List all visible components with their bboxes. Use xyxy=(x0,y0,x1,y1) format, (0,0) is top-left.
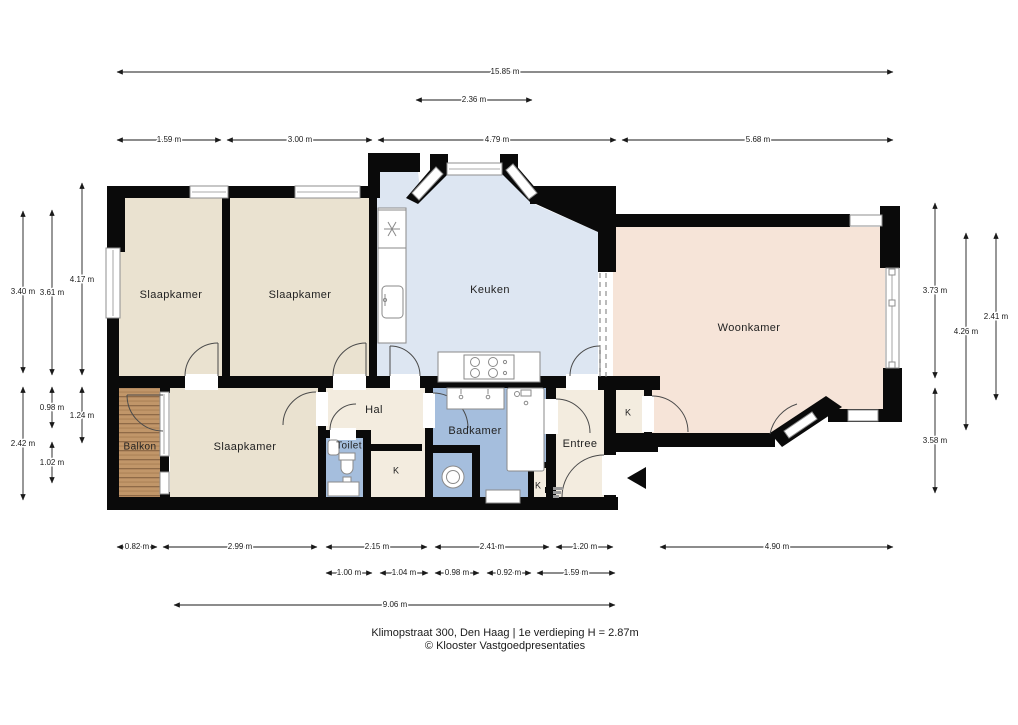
dim-bay-width: 2.36 m xyxy=(462,95,487,104)
dim-left-2: 2.42 m xyxy=(11,439,36,448)
caption-address: Klimopstraat 300, Den Haag | 1e verdiepi… xyxy=(371,627,638,639)
dim-top-4: 5.68 m xyxy=(746,135,771,144)
dim-top-2: 3.00 m xyxy=(288,135,313,144)
dim-bottom-4: 2.41 m xyxy=(480,542,505,551)
dim-bottom-8: 1.04 m xyxy=(392,568,417,577)
dimensions-bottom: 0.82 m 2.99 m 2.15 m 2.41 m 1.20 m 4.90 … xyxy=(117,542,893,609)
caption: Klimopstraat 300, Den Haag | 1e verdiepi… xyxy=(371,627,638,652)
dim-left-7: 1.24 m xyxy=(70,411,95,420)
dim-bottom-6: 4.90 m xyxy=(765,542,790,551)
dim-right-1: 3.73 m xyxy=(923,286,948,295)
label-woonkamer: Woonkamer xyxy=(718,322,781,334)
kitchen-counter xyxy=(378,208,406,343)
window-woonkamer-top xyxy=(850,215,882,226)
dim-bottom-1: 0.82 m xyxy=(125,542,150,551)
bath-step-icon xyxy=(486,490,520,503)
floorplan-canvas: Slaapkamer Slaapkamer Keuken Woonkamer S… xyxy=(0,0,1018,720)
dim-top-1: 1.59 m xyxy=(157,135,182,144)
dim-right-2: 3.58 m xyxy=(923,436,948,445)
dim-left-6: 4.17 m xyxy=(70,275,95,284)
dim-top-3: 4.79 m xyxy=(485,135,510,144)
dimensions-top: 15.85 m 2.36 m 1.59 m 3.00 m 4.79 m 5.68… xyxy=(117,67,893,144)
window-woonkamer-bottom xyxy=(848,410,878,421)
dim-left-4: 0.98 m xyxy=(40,403,65,412)
label-kast-woonkamer: K xyxy=(625,407,631,417)
dim-bottom-9: 0.98 m xyxy=(445,568,470,577)
label-keuken: Keuken xyxy=(470,284,510,296)
dim-bottom-10: 0.92 m xyxy=(497,568,522,577)
washbasin-counter-icon xyxy=(447,388,504,409)
dim-left-3: 3.61 m xyxy=(40,288,65,297)
washing-machine-icon xyxy=(442,466,464,488)
label-kast-hal: K xyxy=(393,465,399,475)
dim-bottom-3: 2.15 m xyxy=(365,542,390,551)
dim-bottom-7: 1.00 m xyxy=(337,568,362,577)
window-balkon-divider-lower xyxy=(160,472,169,494)
dim-bottom-11: 1.59 m xyxy=(564,568,589,577)
dim-right-3: 4.26 m xyxy=(954,327,979,336)
dimensions-right: 3.73 m 3.58 m 4.26 m 2.41 m xyxy=(923,203,1009,493)
label-entree: Entree xyxy=(563,438,598,450)
window-balkon-divider-upper xyxy=(160,392,169,456)
dim-total-width: 15.85 m xyxy=(491,67,520,76)
dim-left-1: 3.40 m xyxy=(11,287,36,296)
meter-box-icon xyxy=(545,487,551,493)
bathtub-icon xyxy=(507,388,544,471)
caption-credit: © Klooster Vastgoedpresentaties xyxy=(425,640,586,652)
floorplan-page: Slaapkamer Slaapkamer Keuken Woonkamer S… xyxy=(0,0,1018,720)
dim-bottom-2: 2.99 m xyxy=(228,542,253,551)
toilet-step-icon xyxy=(328,482,359,496)
label-slaapkamer-3: Slaapkamer xyxy=(214,441,277,453)
kitchen-island xyxy=(438,352,540,382)
dim-right-4: 2.41 m xyxy=(984,312,1009,321)
toilet-tank-icon xyxy=(339,453,355,460)
dimensions-left: 3.40 m 2.42 m 3.61 m 0.98 m 1.02 m 4.17 … xyxy=(11,183,95,500)
entrance-arrow-icon xyxy=(627,467,646,489)
toilet-bowl-icon xyxy=(341,460,353,474)
label-balkon: Balkon xyxy=(124,442,157,453)
dim-bottom-total: 9.06 m xyxy=(383,600,408,609)
label-kast-entree: K xyxy=(535,480,541,490)
label-badkamer: Badkamer xyxy=(448,425,501,437)
dim-bottom-5: 1.20 m xyxy=(573,542,598,551)
label-hal: Hal xyxy=(365,404,383,416)
dim-left-5: 1.02 m xyxy=(40,458,65,467)
label-slaapkamer-1: Slaapkamer xyxy=(140,289,203,301)
label-slaapkamer-2: Slaapkamer xyxy=(269,289,332,301)
label-toilet: Toilet xyxy=(336,441,362,452)
window-woonkamer-right xyxy=(886,268,899,368)
